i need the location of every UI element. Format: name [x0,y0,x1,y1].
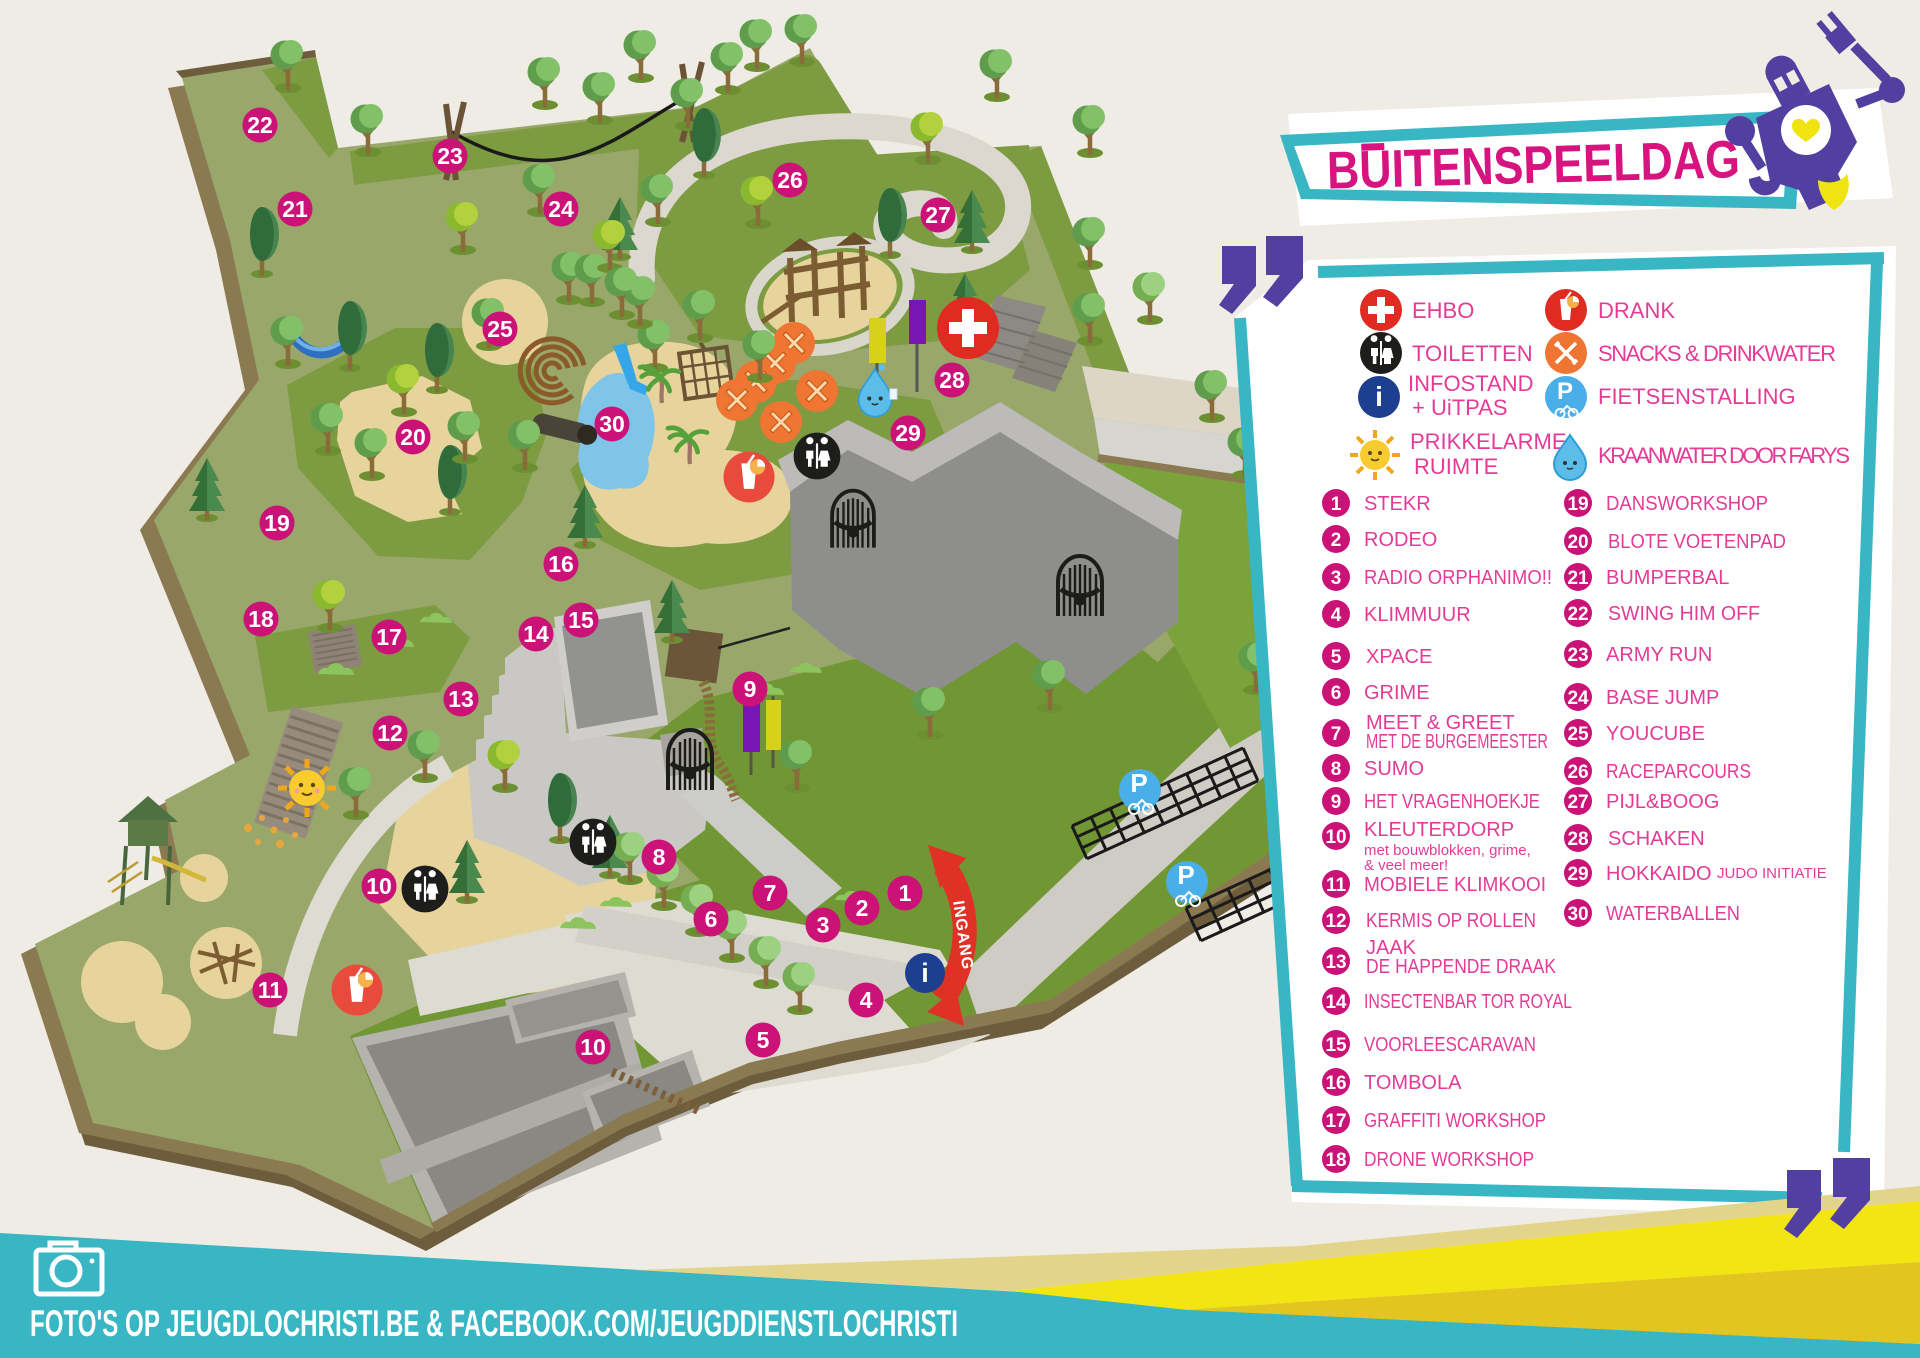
svg-text:VOORLEESCARAVAN: VOORLEESCARAVAN [1364,1034,1536,1056]
svg-text:10: 10 [1325,827,1346,848]
svg-text:SCHAKEN: SCHAKEN [1608,828,1705,850]
svg-text:RADIO ORPHANIMO!!: RADIO ORPHANIMO!! [1364,567,1552,589]
svg-text:24: 24 [1567,688,1589,709]
svg-text:29: 29 [895,420,921,446]
svg-text:10: 10 [366,873,392,899]
svg-text:28: 28 [1567,829,1588,850]
svg-text:DANSWORKSHOP: DANSWORKSHOP [1606,493,1768,515]
svg-text:i: i [1375,381,1383,412]
svg-text:1: 1 [1331,494,1342,515]
svg-text:P: P [1177,860,1194,890]
svg-text:2: 2 [856,895,869,921]
svg-text:5: 5 [757,1027,770,1053]
svg-text:6: 6 [1331,683,1342,704]
svg-text:YOUCUBE: YOUCUBE [1606,723,1705,745]
svg-text:SNACKS & DRINKWATER: SNACKS & DRINKWATER [1598,341,1836,366]
svg-text:19: 19 [1567,494,1588,515]
svg-text:RACEPARCOURS: RACEPARCOURS [1606,761,1751,783]
svg-text:1: 1 [899,880,912,906]
svg-text:KLEUTERDORP: KLEUTERDORP [1364,819,1514,841]
svg-text:BLOTE VOETENPAD: BLOTE VOETENPAD [1608,531,1786,553]
svg-text:14: 14 [1325,992,1347,1013]
svg-text:P: P [1557,378,1573,405]
svg-text:PIJL&BOOG: PIJL&BOOG [1606,791,1719,813]
svg-text:30: 30 [1567,904,1588,925]
svg-text:RODEO: RODEO [1364,529,1437,551]
svg-text:FIETSENSTALLING: FIETSENSTALLING [1598,384,1796,409]
svg-text:DRANK: DRANK [1598,298,1675,323]
svg-text:FOTO'S OP JEUGDLOCHRISTI.BE &: FOTO'S OP JEUGDLOCHRISTI.BE & FACEBOOK.C… [30,1303,958,1344]
svg-text:JUDO INITIATIE: JUDO INITIATIE [1717,865,1827,882]
svg-text:23: 23 [437,143,463,169]
svg-text:12: 12 [377,720,403,746]
svg-text:7: 7 [764,880,777,906]
svg-text:9: 9 [1331,792,1342,813]
svg-text:28: 28 [939,367,965,393]
svg-text:19: 19 [264,510,290,536]
svg-text:26: 26 [1567,762,1588,783]
svg-text:30: 30 [599,411,625,437]
svg-text:BUITENSPEELDAG: BUITENSPEELDAG [1326,130,1740,201]
svg-text:8: 8 [653,844,666,870]
svg-text:21: 21 [1567,568,1589,589]
svg-text:20: 20 [1567,532,1588,553]
svg-text:i: i [921,958,929,988]
svg-text:+ UiTPAS: + UiTPAS [1412,395,1508,420]
svg-text:29: 29 [1567,864,1588,885]
svg-text:KRAANWATER DOOR FARYS: KRAANWATER DOOR FARYS [1598,443,1850,468]
svg-text:3: 3 [817,912,830,938]
svg-text:25: 25 [1567,724,1589,745]
svg-text:16: 16 [548,551,574,577]
svg-text:22: 22 [247,112,273,138]
svg-text:KERMIS OP ROLLEN: KERMIS OP ROLLEN [1366,910,1536,932]
svg-text:17: 17 [1325,1111,1346,1132]
svg-text:17: 17 [376,624,402,650]
svg-text:4: 4 [1331,605,1342,626]
svg-text:SUMO: SUMO [1364,758,1424,780]
svg-text:WATERBALLEN: WATERBALLEN [1606,903,1740,925]
svg-text:23: 23 [1567,645,1588,666]
svg-text:10: 10 [580,1034,606,1060]
svg-text:18: 18 [248,606,274,632]
svg-text:12: 12 [1325,911,1346,932]
svg-text:16: 16 [1325,1073,1346,1094]
svg-text:XPACE: XPACE [1366,646,1432,668]
svg-text:STEKR: STEKR [1364,493,1431,515]
svg-text:22: 22 [1567,604,1588,625]
svg-text:21: 21 [282,196,308,222]
svg-text:MOBIELE KLIMKOOI: MOBIELE KLIMKOOI [1364,874,1546,896]
svg-text:8: 8 [1331,759,1342,780]
svg-text:13: 13 [448,686,474,712]
svg-text:DRONE WORKSHOP: DRONE WORKSHOP [1364,1149,1534,1171]
svg-text:MET DE BURGEMEESTER: MET DE BURGEMEESTER [1366,731,1548,753]
svg-text:HET VRAGENHOEKJE: HET VRAGENHOEKJE [1364,791,1540,813]
svg-text:25: 25 [487,316,513,342]
svg-text:11: 11 [1326,875,1347,896]
svg-text:P: P [1130,768,1147,798]
svg-text:11: 11 [258,977,283,1003]
svg-text:HOKKAIDO: HOKKAIDO [1606,863,1712,885]
svg-text:27: 27 [925,202,951,228]
svg-text:9: 9 [744,676,757,702]
svg-text:& veel meer!: & veel meer! [1364,857,1448,874]
svg-text:SWING HIM OFF: SWING HIM OFF [1608,603,1760,625]
svg-text:15: 15 [568,607,594,633]
svg-text:INFOSTAND: INFOSTAND [1408,371,1533,396]
svg-text:ARMY RUN: ARMY RUN [1606,644,1712,666]
svg-text:PRIKKELARME: PRIKKELARME [1410,429,1567,454]
svg-text:BUMPERBAL: BUMPERBAL [1606,567,1729,589]
svg-text:GRAFFITI WORKSHOP: GRAFFITI WORKSHOP [1364,1110,1546,1132]
svg-text:5: 5 [1331,647,1342,668]
svg-text:6: 6 [705,906,718,932]
svg-text:KLIMMUUR: KLIMMUUR [1364,604,1471,626]
svg-text:TOMBOLA: TOMBOLA [1364,1072,1462,1094]
svg-text:GRIME: GRIME [1364,682,1430,704]
svg-text:15: 15 [1325,1035,1347,1056]
svg-text:24: 24 [548,196,574,222]
svg-text:14: 14 [523,621,549,647]
svg-text:4: 4 [860,987,873,1013]
svg-text:26: 26 [777,167,803,193]
svg-text:BASE JUMP: BASE JUMP [1606,687,1719,709]
svg-text:DE HAPPENDE DRAAK: DE HAPPENDE DRAAK [1366,956,1557,978]
svg-text:7: 7 [1331,724,1342,745]
svg-text:13: 13 [1325,952,1346,973]
svg-text:TOILETTEN: TOILETTEN [1412,341,1533,366]
svg-text:20: 20 [400,424,426,450]
svg-text:RUIMTE: RUIMTE [1414,454,1498,479]
svg-text:27: 27 [1567,792,1588,813]
svg-text:EHBO: EHBO [1412,298,1474,323]
svg-text:INSECTENBAR TOR ROYAL: INSECTENBAR TOR ROYAL [1364,991,1572,1013]
svg-text:3: 3 [1331,568,1342,589]
svg-text:2: 2 [1331,530,1342,551]
svg-text:18: 18 [1325,1150,1346,1171]
